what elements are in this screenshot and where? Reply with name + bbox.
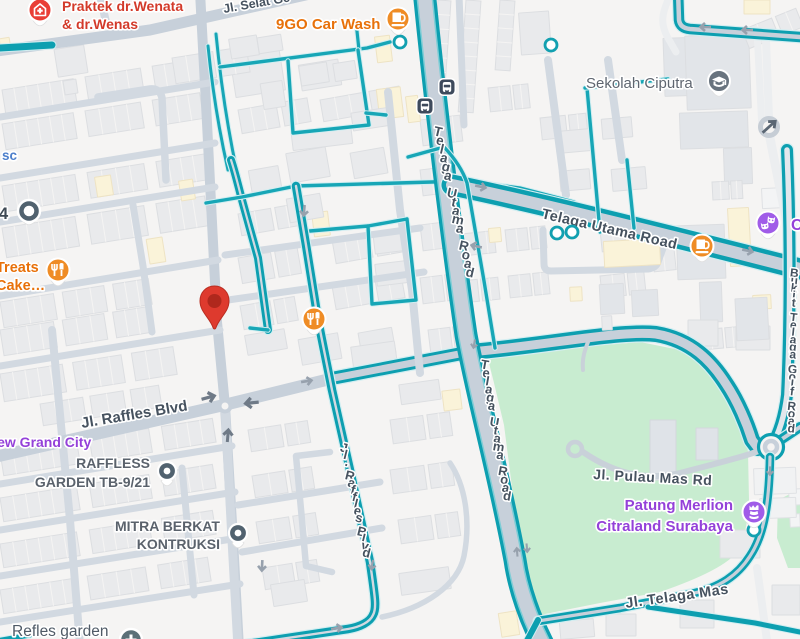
svg-text:Praktek dr.Wenata: Praktek dr.Wenata (62, 0, 183, 14)
svg-text:MITRA BERKAT: MITRA BERKAT (115, 518, 220, 534)
svg-text:Patung Merlion: Patung Merlion (625, 497, 733, 514)
svg-text:KONTRUKSI: KONTRUKSI (137, 536, 220, 552)
svg-text:New Grand City: New Grand City (0, 434, 91, 450)
svg-text:9GO Car Wash: 9GO Car Wash (276, 16, 380, 33)
svg-text:d: d (787, 421, 796, 436)
svg-text:Citraland Surabaya: Citraland Surabaya (596, 518, 733, 535)
svg-text:sc: sc (2, 148, 18, 163)
svg-text:Refles garden: Refles garden (12, 623, 109, 639)
svg-text:Treats: Treats (0, 260, 39, 276)
svg-text:& dr.Wenas: & dr.Wenas (62, 16, 138, 32)
svg-text:C: C (791, 217, 800, 234)
svg-text:GARDEN TB-9/21: GARDEN TB-9/21 (35, 474, 150, 490)
svg-text:4: 4 (0, 205, 9, 223)
svg-text:RAFFLESS: RAFFLESS (76, 455, 150, 471)
svg-text:Sekolah Ciputra: Sekolah Ciputra (586, 75, 693, 92)
svg-text:Cake…: Cake… (0, 278, 45, 294)
